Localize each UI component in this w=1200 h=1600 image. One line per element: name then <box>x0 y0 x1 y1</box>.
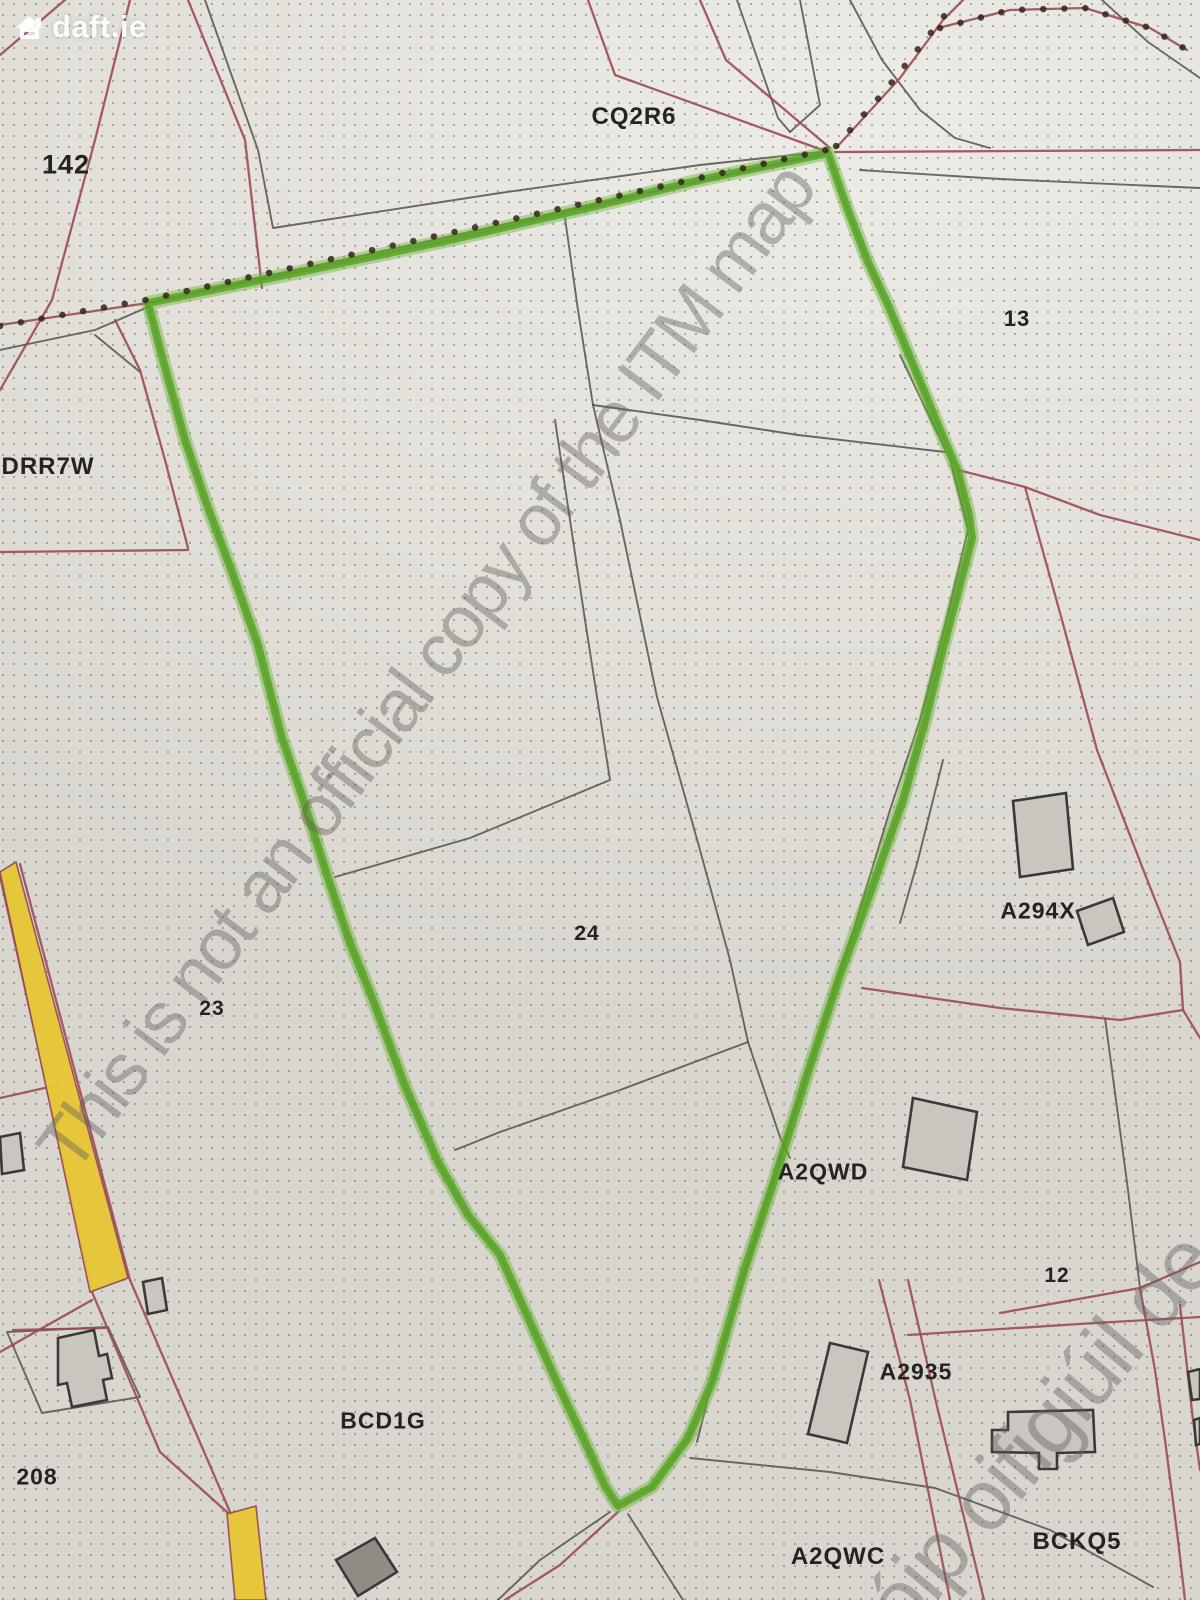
parcel-label-13: 13 <box>1004 306 1030 332</box>
parcel-label-A2QWD: A2QWD <box>778 1159 869 1186</box>
parcel-label-142: 142 <box>42 150 90 181</box>
daft-logo-text: daft.ie <box>52 9 147 45</box>
parcel-labels: 142CQ2R6DRR7W132324A294XA2QWD12A2935BCD1… <box>0 0 1200 1600</box>
parcel-label-BCKQ5: BCKQ5 <box>1032 1528 1121 1556</box>
parcel-label-DRR7W: DRR7W <box>2 453 95 481</box>
scanned-map-photo: This is not an official copy of the ITM … <box>0 0 1200 1600</box>
parcel-label-BCD1G: BCD1G <box>340 1408 426 1435</box>
parcel-label-12: 12 <box>1044 1264 1069 1288</box>
parcel-label-CQ2R6: CQ2R6 <box>591 103 676 131</box>
parcel-label-24: 24 <box>574 922 599 946</box>
parcel-label-A2935: A2935 <box>880 1359 953 1386</box>
daft-logo: daft.ie <box>12 9 147 45</box>
parcel-label-A294X: A294X <box>1000 898 1075 925</box>
parcel-label-23: 23 <box>199 997 224 1021</box>
daft-house-icon <box>12 12 46 42</box>
parcel-label-208: 208 <box>16 1464 57 1491</box>
parcel-label-A2QWC: A2QWC <box>791 1543 885 1571</box>
